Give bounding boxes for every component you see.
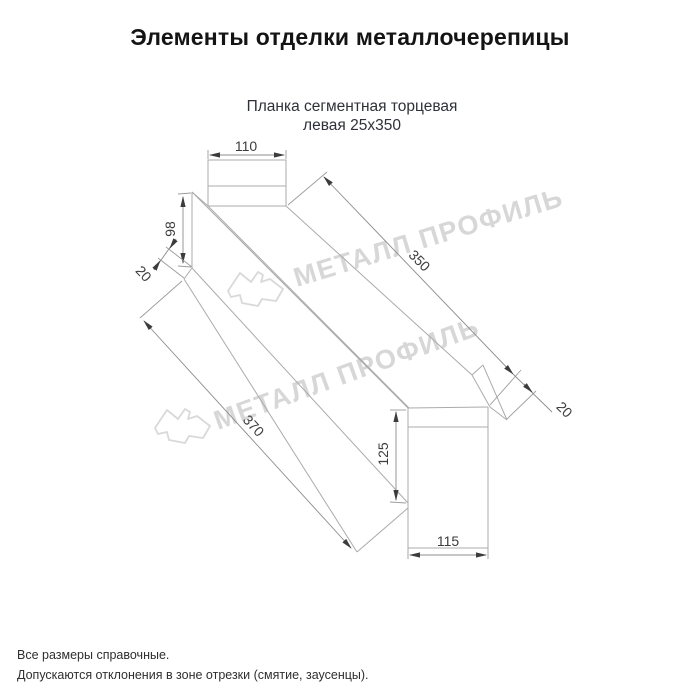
left-end-lip-edge [184, 268, 192, 279]
right-tab-top-edge [408, 407, 488, 408]
watermark-lower: МЕТАЛЛ ПРОФИЛЬ [155, 312, 484, 443]
technical-drawing: МЕТАЛЛ ПРОФИЛЬ МЕТАЛЛ ПРОФИЛЬ [0, 0, 700, 700]
catalog-page: { "header": { "title": "Элементы отделки… [0, 0, 700, 700]
dim-110-label: 110 [235, 138, 258, 154]
watermark-text: МЕТАЛЛ ПРОФИЛЬ [290, 182, 567, 293]
bottom-end-edge [357, 508, 408, 552]
dimension-110: 110 [208, 138, 286, 159]
watermark-upper: МЕТАЛЛ ПРОФИЛЬ [228, 182, 567, 306]
right-flange-outer-edge [483, 365, 507, 420]
dimension-125: 125 [375, 410, 406, 503]
left-end-tab [208, 160, 286, 206]
dim-115-label: 115 [437, 533, 460, 549]
right-flange-top-cap [472, 365, 483, 375]
lip-outer-long-edge [184, 279, 357, 552]
dim-20-left-label: 20 [132, 262, 154, 284]
metal-profil-logo-icon [228, 272, 283, 306]
web-bottom-long-edge [192, 268, 408, 503]
metal-profil-logo-icon [155, 409, 210, 443]
footer-notes: Все размеры справочные. Допускаются откл… [17, 645, 677, 685]
dim-20-right-label: 20 [553, 398, 575, 420]
footer-note-1: Все размеры справочные. [17, 645, 677, 665]
dim-98-label: 98 [162, 221, 178, 237]
dimension-20-right: 20 [507, 374, 576, 421]
dim-125-label: 125 [375, 442, 391, 466]
footer-note-2: Допускаются отклонения в зоне отрезки (с… [17, 665, 677, 685]
dimension-98: 98 [162, 193, 191, 267]
dimension-115: 115 [408, 533, 488, 559]
right-flange-inner-edge [472, 375, 490, 407]
